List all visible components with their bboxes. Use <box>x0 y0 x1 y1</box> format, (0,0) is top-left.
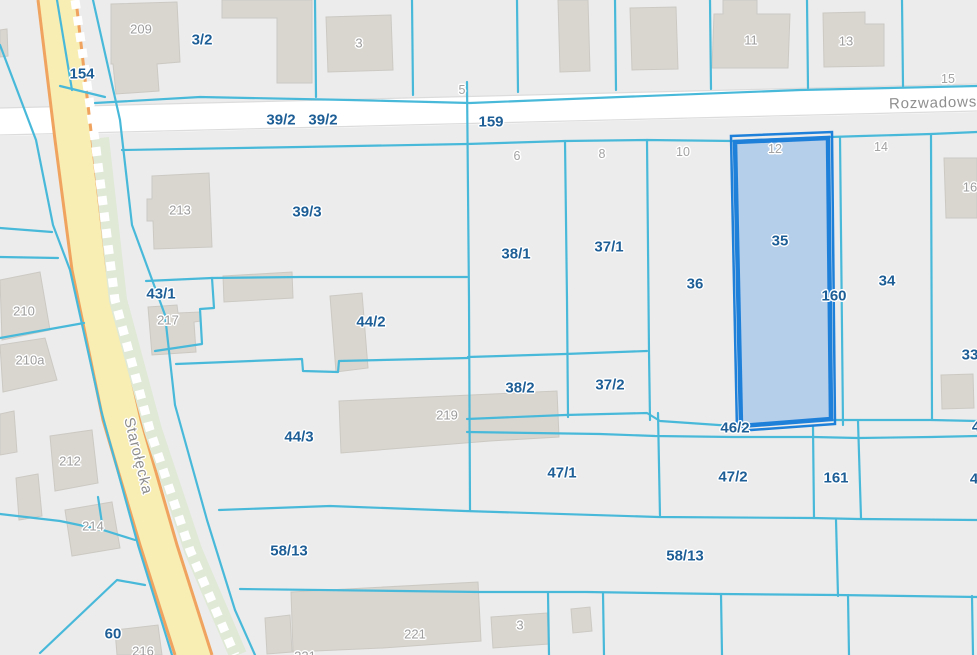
address-label-15: 15 <box>941 72 955 86</box>
parcel-label-34: 34 <box>879 273 896 290</box>
address-label-12: 12 <box>768 142 782 156</box>
building-label-3: 3 <box>516 618 523 633</box>
building-label-221: 221 <box>294 649 316 655</box>
building-label-11: 11 <box>744 33 758 48</box>
building-label-219: 219 <box>436 408 458 423</box>
parcel-label-44-3: 44/3 <box>284 429 313 446</box>
labels-layer: 1543/239/239/215939/343/144/238/137/1363… <box>0 0 977 655</box>
parcel-label-4: 4 <box>970 471 977 488</box>
parcel-label-36: 36 <box>687 276 704 293</box>
building-label-210a: 210a <box>16 353 45 368</box>
building-label-213: 213 <box>169 203 191 218</box>
building-label-13: 13 <box>839 34 853 49</box>
street-label-Staro-cka: Starołęcka <box>120 416 156 497</box>
parcel-label-44-2: 44/2 <box>356 314 385 331</box>
parcel-label-47-1: 47/1 <box>547 465 576 482</box>
address-label-14: 14 <box>874 140 888 154</box>
parcel-label-159: 159 <box>478 114 503 131</box>
parcel-label-154: 154 <box>69 66 94 83</box>
building-label-3: 3 <box>355 36 362 51</box>
parcel-label-46-2: 46/2 <box>720 420 749 437</box>
building-label-214: 214 <box>82 519 104 534</box>
parcel-label-4: 4 <box>972 419 977 436</box>
map-canvas[interactable]: 1543/239/239/215939/343/144/238/137/1363… <box>0 0 977 655</box>
building-label-210: 210 <box>13 304 35 319</box>
parcel-label-37-1: 37/1 <box>594 239 623 256</box>
parcel-label-39-3: 39/3 <box>292 204 321 221</box>
parcel-label-39-2: 39/2 <box>266 112 295 129</box>
parcel-label-33: 33 <box>962 347 977 364</box>
parcel-label-161: 161 <box>823 470 848 487</box>
parcel-label-38-1: 38/1 <box>501 246 530 263</box>
building-label-221: 221 <box>404 627 426 642</box>
parcel-label-160: 160 <box>821 288 846 305</box>
address-label-5: 5 <box>459 83 466 97</box>
address-label-6: 6 <box>514 149 521 163</box>
building-label-212: 212 <box>59 454 81 469</box>
parcel-label-47-2: 47/2 <box>718 469 747 486</box>
parcel-label-58-13: 58/13 <box>666 548 704 565</box>
address-label-8: 8 <box>599 147 606 161</box>
parcel-label-3-2: 3/2 <box>192 32 213 49</box>
building-label-217: 217 <box>157 313 179 328</box>
building-label-216: 216 <box>132 644 154 655</box>
street-label-Rozwadows: Rozwadows <box>889 93 977 112</box>
parcel-label-38-2: 38/2 <box>505 380 534 397</box>
building-label-16: 16 <box>963 180 977 195</box>
parcel-label-58-13: 58/13 <box>270 543 308 560</box>
parcel-label-60: 60 <box>105 626 122 643</box>
building-label-209: 209 <box>130 22 152 37</box>
parcel-label-43-1: 43/1 <box>146 286 175 303</box>
parcel-label-39-2: 39/2 <box>308 112 337 129</box>
address-label-10: 10 <box>676 145 690 159</box>
parcel-label-37-2: 37/2 <box>595 377 624 394</box>
parcel-label-35: 35 <box>772 233 789 250</box>
